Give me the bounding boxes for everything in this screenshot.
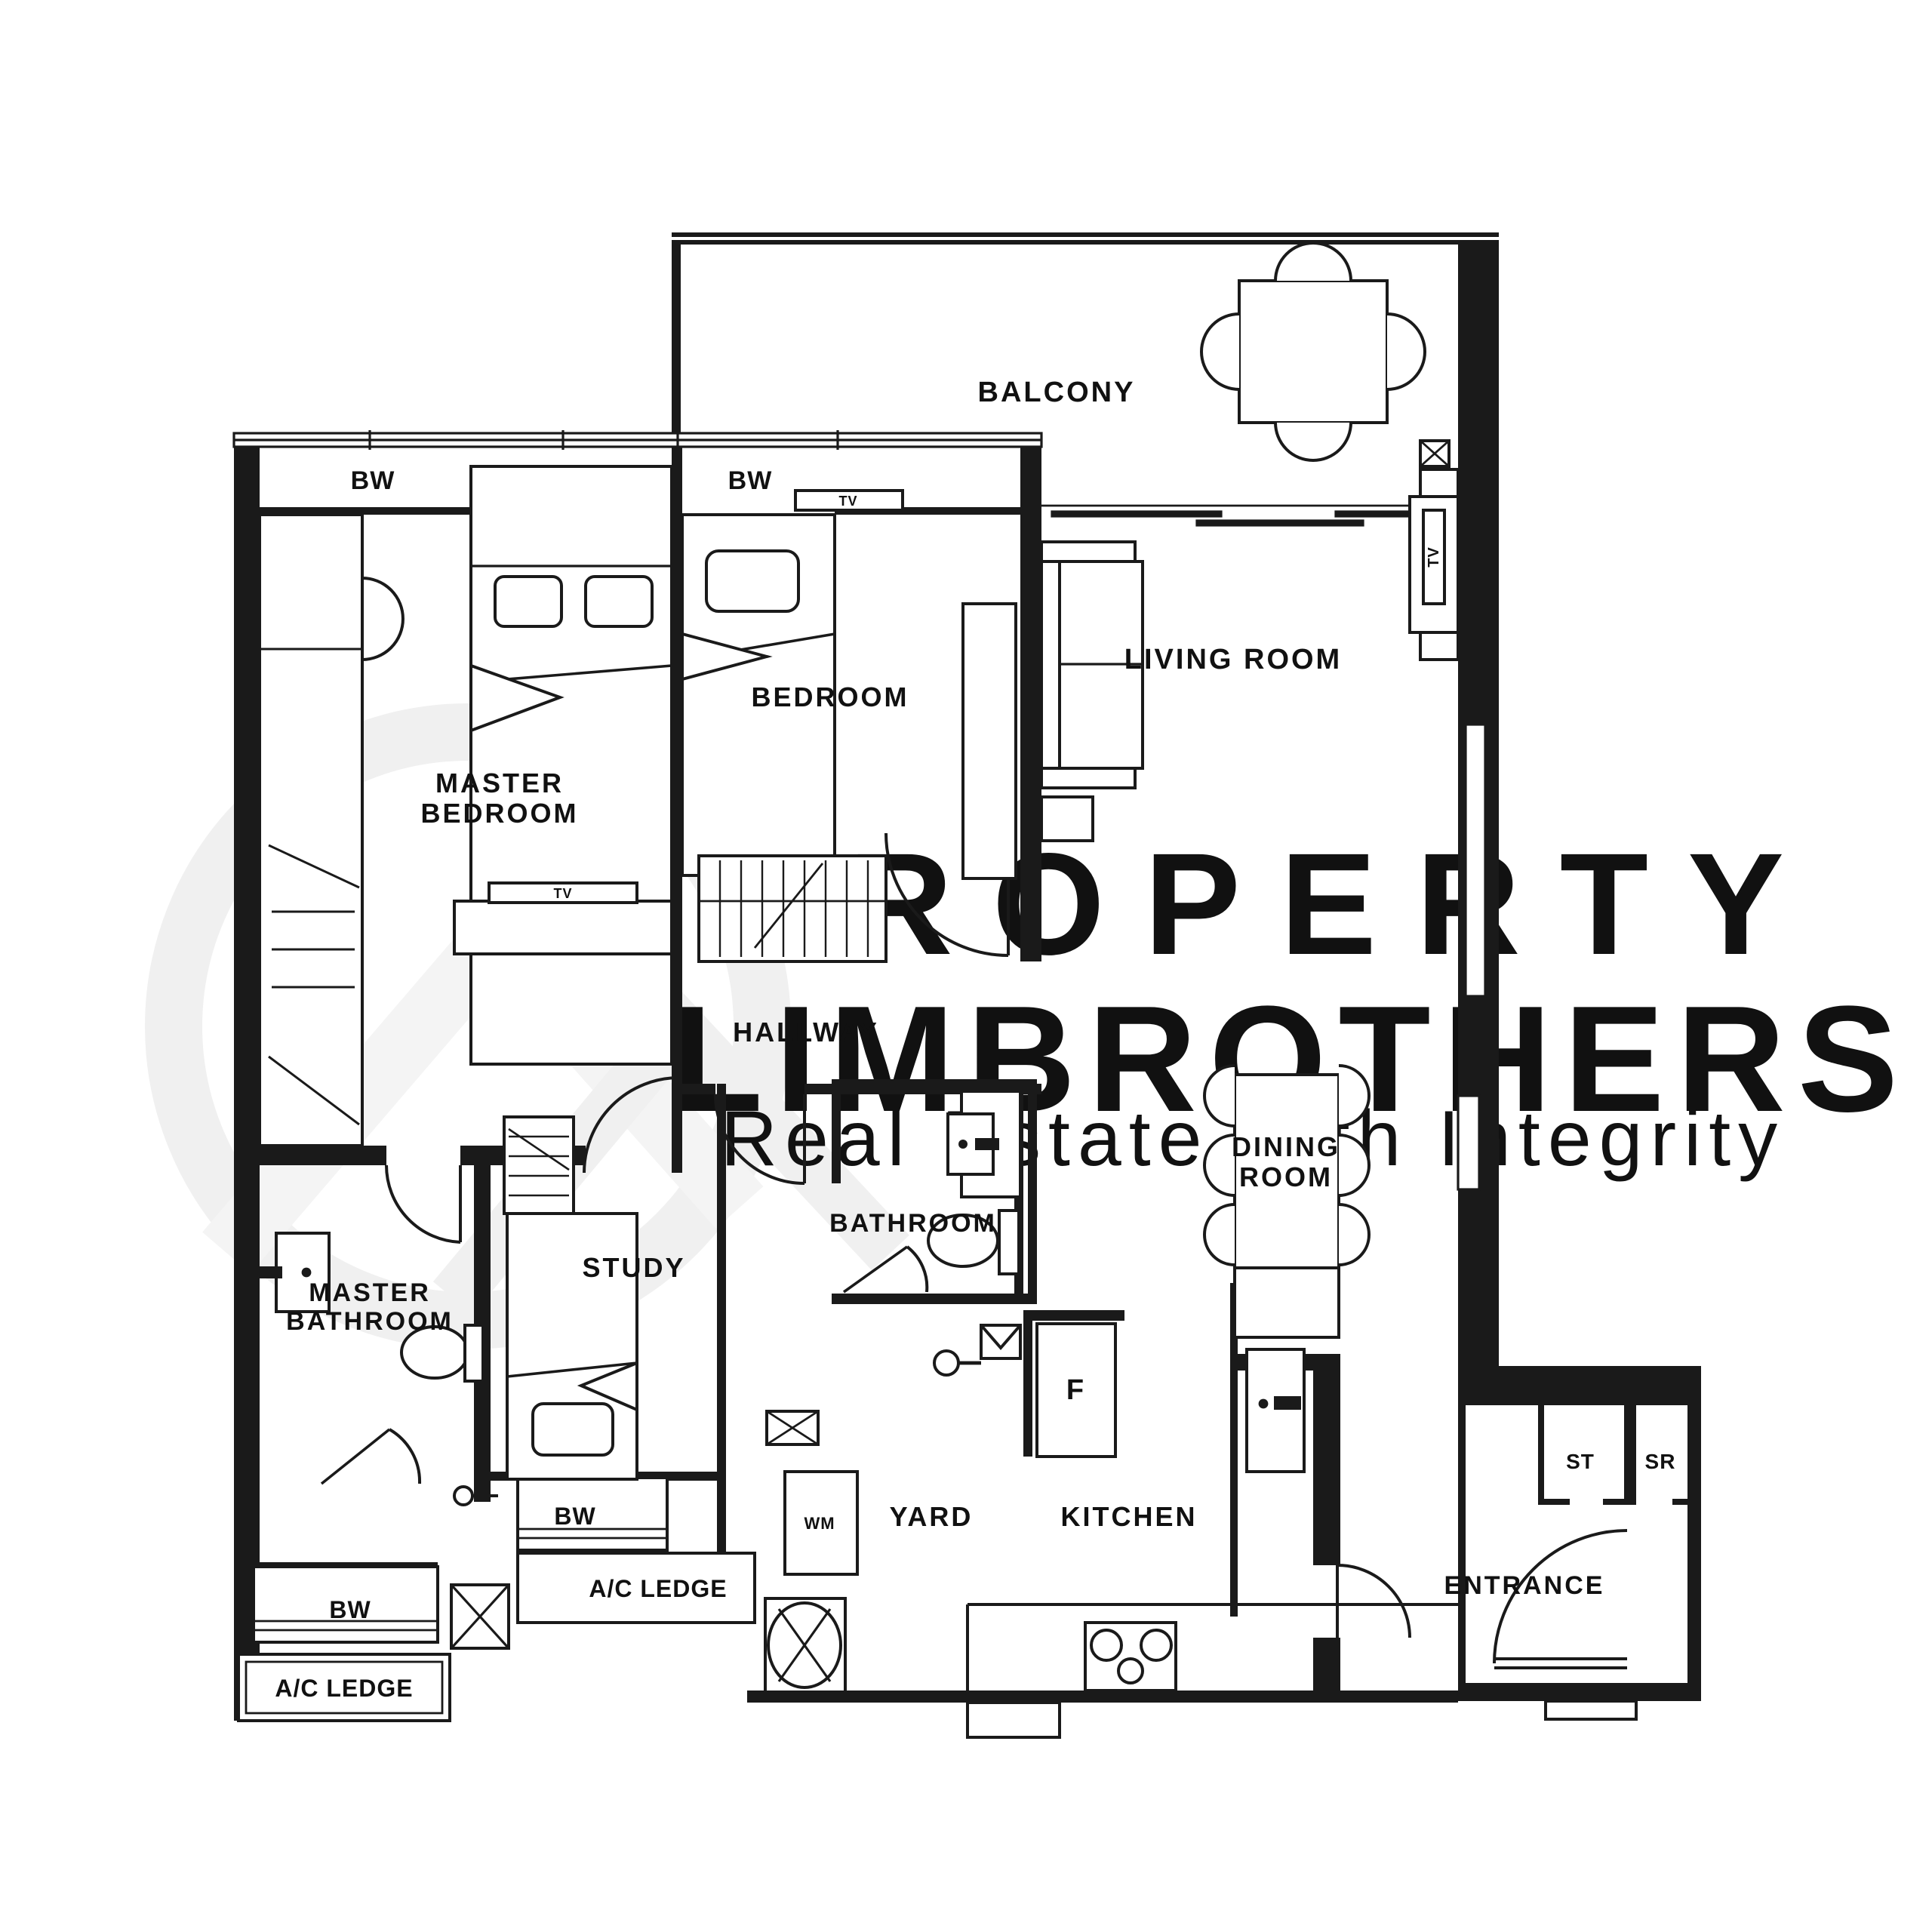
label-master-bath-2: BATHROOM [286,1307,454,1336]
master-bathroom-door-arc [386,1165,460,1242]
wall-bedroom-east [1020,447,1041,961]
study-bed-pillow [533,1404,613,1455]
bath-shower-door-2 [907,1247,927,1292]
wall-kitchen-east-lower [1313,1638,1340,1697]
label-tv-master: TV [553,886,572,901]
bedroom-closet [699,856,886,961]
mbath-shower-head-icon [454,1487,472,1505]
label-bathroom: BATHROOM [829,1209,997,1238]
label-study: STUDY [582,1252,685,1283]
label-living-room: LIVING ROOM [1124,644,1342,675]
label-bw-4: BW [554,1503,595,1530]
wall-entrance-left [1458,1405,1466,1683]
label-hallway: HALLWAY [733,1017,879,1048]
mbath-toilet-tank [465,1325,483,1381]
label-bw-3: BW [329,1596,371,1623]
kitchen-ledge-step [968,1703,1060,1737]
master-bed-pillow-1 [495,577,561,626]
wall-entrance-top [1458,1366,1701,1405]
label-wm: WM [804,1514,835,1533]
wall-balcony-left [672,241,681,433]
floorplan-page: PROPERTY LIMBROTHERS Real Estate with In… [0,0,1932,1932]
label-balcony: BALCONY [978,377,1136,408]
label-master-bath-1: MASTER [309,1278,431,1307]
label-dining-1: DINING [1232,1131,1340,1162]
master-tv-console [454,901,672,954]
sofa-back [1041,561,1060,768]
slider-panel-1 [1052,512,1221,516]
mbath-shower-door-1 [321,1429,389,1484]
label-master-bedroom-2: BEDROOM [421,798,579,829]
island-sink-unit [1247,1349,1304,1472]
wall-fridge-niche-left [1023,1310,1032,1457]
wall-bathroom-vestibule [832,1079,841,1183]
wardrobe-door-arc [362,578,403,660]
wall-sr-south [1672,1499,1687,1505]
balcony-chair-top [1275,243,1351,281]
mbath-faucet-dot [302,1268,312,1278]
wall-bathroom-south [832,1294,1037,1304]
wall-fridge-niche-top [1023,1310,1124,1321]
wall-st-south-1 [1538,1499,1570,1505]
stove-burner-2 [1141,1630,1171,1660]
wall-entrance-right [1687,1366,1701,1701]
master-bed [471,466,672,1064]
stove-burner-3 [1118,1659,1143,1683]
mbath-shower-door-2 [389,1429,420,1484]
master-bed-pillow-2 [586,577,652,626]
wall-st-south-2 [1603,1499,1624,1505]
bedroom-desk [963,604,1016,878]
wall-bathroom-east-2 [1028,1079,1037,1304]
tv-wall-cabinet-bottom [1420,632,1458,660]
label-ac-ledge-right: A/C LEDGE [589,1575,727,1602]
label-dining-2: ROOM [1239,1161,1333,1192]
sofa-armrest-bottom [1041,768,1135,788]
label-kitchen: KITCHEN [1061,1501,1198,1532]
mbath-faucet-bar [257,1268,281,1277]
entrance-sill [1546,1701,1636,1719]
wall-bathroom-north [832,1079,1037,1090]
wall-hallway-south-1 [682,1084,715,1094]
label-master-bedroom-1: MASTER [435,768,564,798]
label-sr: SR [1645,1450,1676,1473]
wall-entrance-bottom [1458,1683,1701,1701]
dining-chair-l3 [1204,1204,1235,1265]
island-faucet-dot [1259,1399,1269,1409]
label-bedroom: BEDROOM [752,681,909,712]
balcony-table [1239,281,1387,423]
dining-counter [1235,1268,1339,1337]
wall-left [234,433,260,1570]
bath-faucet-bar [977,1140,998,1149]
balcony-chair-right [1387,314,1425,389]
niche-right-wall [1458,1096,1479,1189]
wall-st-left [1538,1405,1544,1505]
bath-faucet-dot [958,1140,968,1149]
tv-wall-cabinet-top [1420,469,1458,497]
label-yard: YARD [890,1501,974,1532]
label-bw-2: BW [728,466,773,495]
label-fridge: F [1066,1374,1086,1406]
balcony-chair-bottom [1275,423,1351,460]
label-ac-ledge-left: A/C LEDGE [275,1675,413,1702]
yard-door-handle-icon [934,1351,958,1375]
wall-master-bedroom-divider [672,447,682,1173]
sofa-side-table [1041,797,1093,841]
label-bw-1: BW [351,466,395,495]
balcony-chair-left [1201,314,1239,389]
master-wardrobe [260,515,362,1146]
wall-st-sr-divider [1624,1405,1636,1505]
wall-master-south-1 [260,1146,386,1165]
window-right-wall [1466,724,1485,996]
dining-chair-r3 [1339,1204,1369,1265]
sofa-armrest-top [1041,542,1135,561]
island-faucet-bar [1275,1398,1300,1408]
floorplan-svg: PROPERTY LIMBROTHERS Real Estate with In… [0,0,1932,1932]
slider-panel-2 [1197,521,1363,525]
stove-burner-1 [1091,1630,1121,1660]
wall-study-east [717,1084,726,1502]
wall-kitchen-east-upper [1313,1371,1340,1565]
label-tv-bedroom: TV [838,494,857,509]
kitchen-door-arc [1337,1565,1410,1638]
label-tv-living: TV [1426,546,1442,568]
label-entrance: ENTRANCE [1444,1571,1605,1600]
bath-toilet-tank [999,1211,1019,1274]
label-st: ST [1566,1450,1595,1473]
wall-bottom [747,1690,1458,1703]
bedroom-bed-pillow [706,551,798,611]
